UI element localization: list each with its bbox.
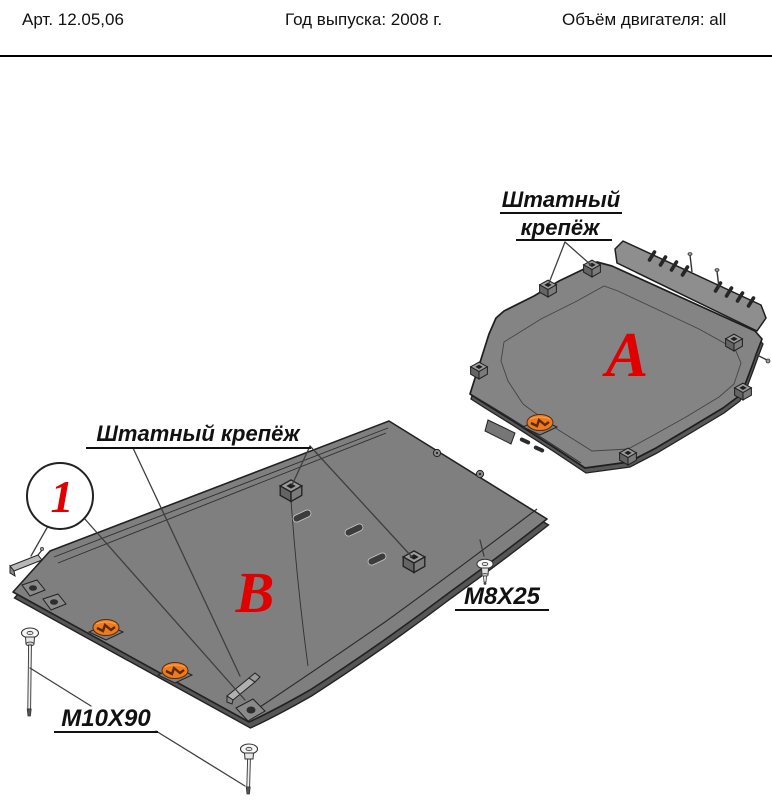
svg-text:M10X90: M10X90 [61,705,151,732]
production-year: Год выпуска: 2008 г. [285,10,442,30]
part-b-surface [13,421,547,722]
bolt-m10-icon [241,744,258,794]
article-number: Арт. 12.05,06 [22,10,124,30]
skid-plate-diagram-svg: B [0,57,772,800]
svg-text:Штатный крепёж: Штатный крепёж [96,421,301,446]
part-b-plate: B [13,421,549,728]
callout-number: 1 [51,471,74,522]
fastener-label-a-line2: крепёж [521,215,601,240]
part-a-letter: A [602,319,649,390]
catalog-header: Арт. 12.05,06 Год выпуска: 2008 г. Объём… [0,0,772,57]
part-a-plate: A [470,241,770,473]
m8-bolt-label: M8X25 [455,583,549,610]
fastener-label-a: Штатный крепёж [500,187,622,240]
fastener-label-b: Штатный крепёж [86,421,311,448]
m10-bolt-label: M10X90 [54,705,158,732]
engine-volume: Объём двигателя: all [562,10,726,30]
callout-1: 1 [27,463,93,529]
screw-head-icon [433,449,440,456]
flange-pin-icon [688,253,692,272]
parts-diagram: B [0,57,772,800]
svg-text:M8X25: M8X25 [464,583,541,610]
part-b-letter: B [235,560,275,625]
screw-head-icon [476,470,483,477]
fastener-label-a-line1: Штатный [502,187,621,212]
